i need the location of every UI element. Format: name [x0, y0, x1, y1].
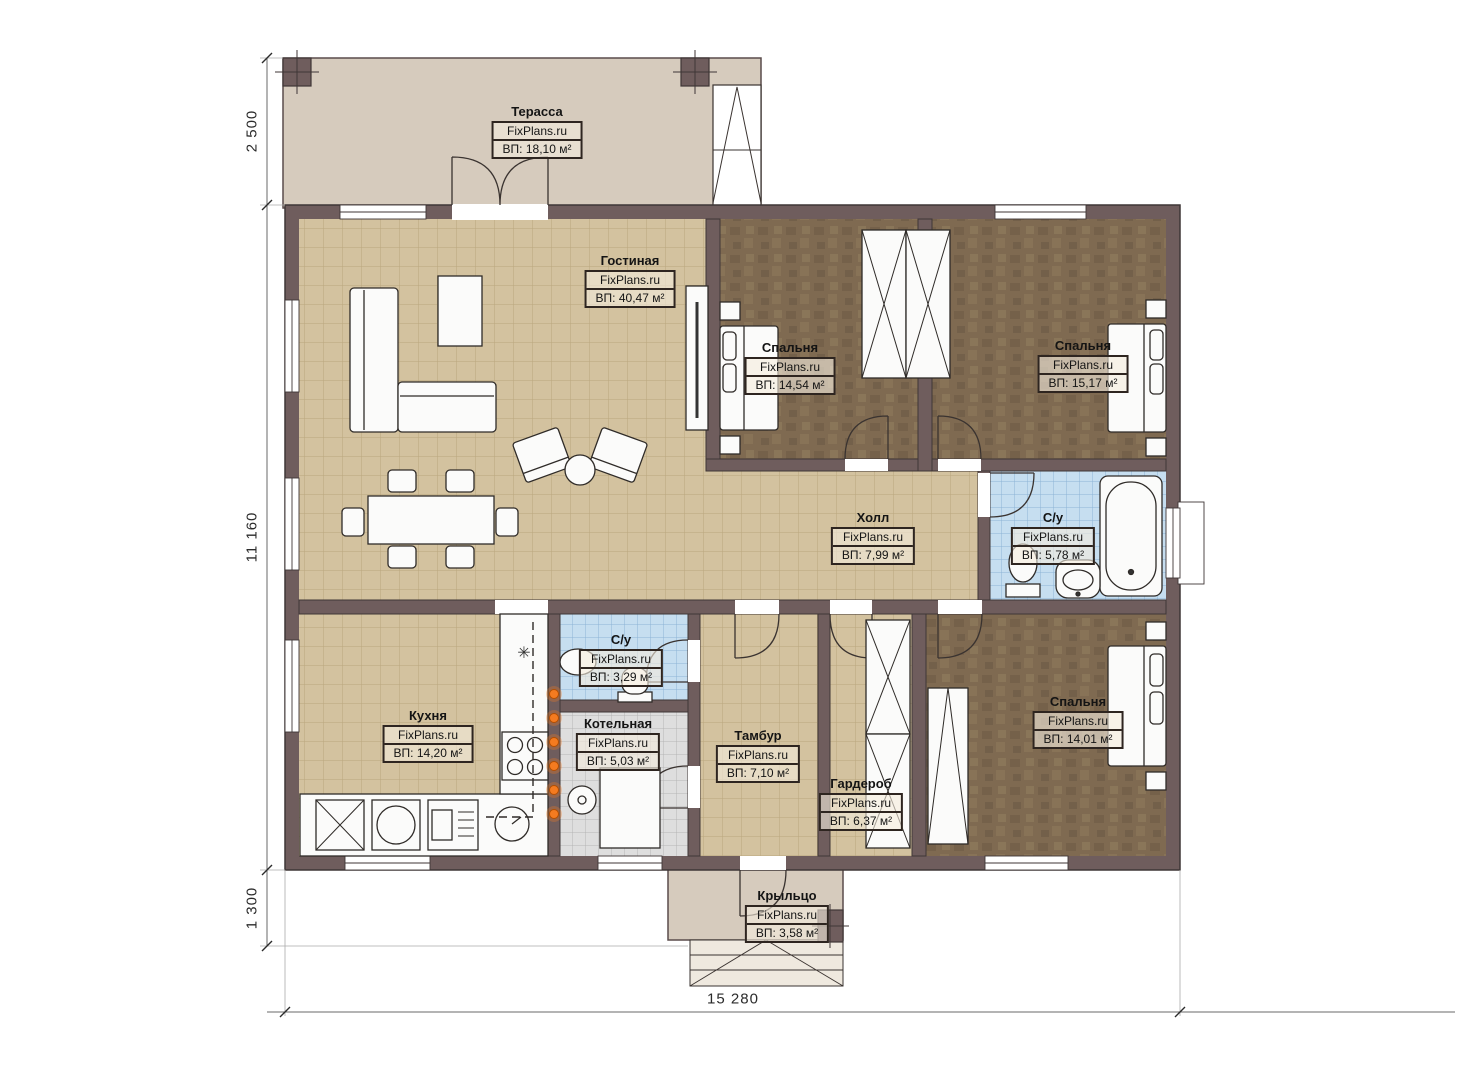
room-label-kitchen: Кухня FixPlans.ru ВП: 14,20 м² — [383, 708, 474, 763]
room-name: Терасса — [492, 104, 583, 119]
room-info-box: FixPlans.ru ВП: 6,37 м² — [819, 793, 903, 831]
room-area: ВП: 14,54 м² — [747, 377, 834, 393]
room-label-hall: Холл FixPlans.ru ВП: 7,99 м² — [831, 510, 915, 565]
brand-watermark: FixPlans.ru — [747, 907, 827, 925]
window — [285, 478, 299, 570]
terrace-stairs — [713, 85, 761, 207]
window — [345, 856, 430, 870]
room-name: Тамбур — [716, 728, 800, 743]
room-name: Крыльцо — [745, 888, 829, 903]
room-label-terrace: Терасса FixPlans.ru ВП: 18,10 м² — [492, 104, 583, 159]
room-label-boiler: Котельная FixPlans.ru ВП: 5,03 м² — [576, 716, 660, 771]
floorplan-svg: ✳ — [0, 0, 1473, 1080]
room-name: С/у — [1011, 510, 1095, 525]
room-name: Спальня — [1033, 694, 1124, 709]
riser-marker — [546, 806, 562, 822]
room-area: ВП: 7,10 м² — [718, 765, 798, 781]
window-bay — [1166, 502, 1204, 584]
room-area: ВП: 6,37 м² — [821, 813, 901, 829]
room-area: ВП: 18,10 м² — [494, 141, 581, 157]
riser-marker — [546, 782, 562, 798]
dimension-terrace-depth: 2 500 — [244, 110, 261, 153]
dimension-porch-depth: 1 300 — [244, 887, 261, 930]
brand-watermark: FixPlans.ru — [1040, 357, 1127, 375]
brand-watermark: FixPlans.ru — [718, 747, 798, 765]
room-area: ВП: 5,78 м² — [1013, 547, 1093, 563]
room-label-porch: Крыльцо FixPlans.ru ВП: 3,58 м² — [745, 888, 829, 943]
brand-watermark: FixPlans.ru — [587, 272, 674, 290]
room-info-box: FixPlans.ru ВП: 7,99 м² — [831, 527, 915, 565]
room-info-box: FixPlans.ru ВП: 14,20 м² — [383, 725, 474, 763]
side-table — [438, 276, 482, 346]
kitchen-counter — [300, 794, 548, 856]
room-name: С/у — [579, 632, 663, 647]
tv-unit — [686, 286, 708, 430]
stove — [502, 732, 548, 780]
room-area: ВП: 5,03 м² — [578, 753, 658, 769]
brand-watermark: FixPlans.ru — [833, 529, 913, 547]
brand-watermark: FixPlans.ru — [1035, 713, 1122, 731]
room-area: ВП: 15,17 м² — [1040, 375, 1127, 391]
brand-watermark: FixPlans.ru — [821, 795, 901, 813]
room-label-bedroom2: Спальня FixPlans.ru ВП: 15,17 м² — [1038, 338, 1129, 393]
room-area: ВП: 14,20 м² — [385, 745, 472, 761]
room-area: ВП: 40,47 м² — [587, 290, 674, 306]
room-name: Гардероб — [819, 776, 903, 791]
window — [285, 640, 299, 732]
brand-watermark: FixPlans.ru — [747, 359, 834, 377]
room-name: Гостиная — [585, 253, 676, 268]
room-info-box: FixPlans.ru ВП: 5,78 м² — [1011, 527, 1095, 565]
room-label-bathroom-main: С/у FixPlans.ru ВП: 5,78 м² — [1011, 510, 1095, 565]
room-label-tambour: Тамбур FixPlans.ru ВП: 7,10 м² — [716, 728, 800, 783]
room-label-living: Гостиная FixPlans.ru ВП: 40,47 м² — [585, 253, 676, 308]
dimension-house-width: 15 280 — [707, 991, 759, 1008]
riser-marker — [546, 758, 562, 774]
bathtub — [1100, 476, 1162, 596]
room-area: ВП: 3,29 м² — [581, 669, 661, 685]
room-label-bedroom1: Спальня FixPlans.ru ВП: 14,54 м² — [745, 340, 836, 395]
room-label-bathroom-small: С/у FixPlans.ru ВП: 3,29 м² — [579, 632, 663, 687]
brand-watermark: FixPlans.ru — [1013, 529, 1093, 547]
room-name: Холл — [831, 510, 915, 525]
brand-watermark: FixPlans.ru — [385, 727, 472, 745]
room-info-box: FixPlans.ru ВП: 14,01 м² — [1033, 711, 1124, 749]
room-area: ВП: 14,01 м² — [1035, 731, 1122, 747]
dimension-house-depth: 11 160 — [244, 512, 261, 563]
coffee-table — [565, 455, 595, 485]
riser-marker — [546, 734, 562, 750]
porch-steps — [690, 940, 843, 986]
room-area: ВП: 7,99 м² — [833, 547, 913, 563]
riser-marker — [546, 710, 562, 726]
wardrobe-closet — [862, 230, 950, 378]
window — [340, 205, 426, 219]
room-info-box: FixPlans.ru ВП: 3,29 м² — [579, 649, 663, 687]
room-info-box: FixPlans.ru ВП: 18,10 м² — [492, 121, 583, 159]
room-info-box: FixPlans.ru ВП: 7,10 м² — [716, 745, 800, 783]
brand-watermark: FixPlans.ru — [494, 123, 581, 141]
room-info-box: FixPlans.ru ВП: 5,03 м² — [576, 733, 660, 771]
fridge-icon: ✳ — [517, 645, 530, 662]
kitchen-column — [500, 614, 548, 794]
room-info-box: FixPlans.ru ВП: 3,58 м² — [745, 905, 829, 943]
brand-watermark: FixPlans.ru — [581, 651, 661, 669]
floor-plan-canvas: ✳ Терасса FixPlans.ru ВП: 18,10 м² — [0, 0, 1473, 1080]
brand-watermark: FixPlans.ru — [578, 735, 658, 753]
room-label-bedroom3: Спальня FixPlans.ru ВП: 14,01 м² — [1033, 694, 1124, 749]
window — [985, 856, 1068, 870]
room-area: ВП: 3,58 м² — [747, 925, 827, 941]
room-info-box: FixPlans.ru ВП: 40,47 м² — [585, 270, 676, 308]
room-info-box: FixPlans.ru ВП: 15,17 м² — [1038, 355, 1129, 393]
room-name: Спальня — [1038, 338, 1129, 353]
window — [598, 856, 662, 870]
room-name: Кухня — [383, 708, 474, 723]
sink — [1056, 560, 1100, 598]
window — [285, 300, 299, 392]
window — [995, 205, 1086, 219]
room-name: Спальня — [745, 340, 836, 355]
wardrobe-closet — [928, 688, 968, 844]
room-label-wardrobe: Гардероб FixPlans.ru ВП: 6,37 м² — [819, 776, 903, 831]
riser-marker — [546, 686, 562, 702]
room-name: Котельная — [576, 716, 660, 731]
room-info-box: FixPlans.ru ВП: 14,54 м² — [745, 357, 836, 395]
